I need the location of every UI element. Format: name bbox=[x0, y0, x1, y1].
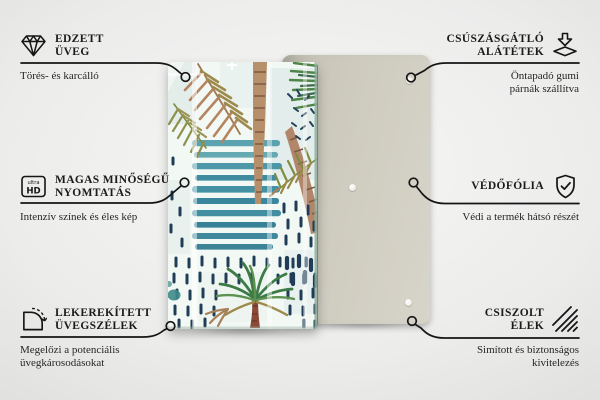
feature-high-quality-print: ultra HD MAGAS MINŐSÉGŰ NYOMTATÁS Intenz… bbox=[20, 170, 192, 224]
feature-title-line: ÜVEGSZÉLEK bbox=[55, 320, 151, 333]
feature-title-line: LEKEREKÍTETT bbox=[55, 307, 151, 320]
feature-title-line: ÜVEG bbox=[55, 46, 104, 59]
feature-subtitle-line: Törés- és karcálló bbox=[20, 70, 192, 83]
ultra-hd-icon-text-top: ultra bbox=[27, 180, 39, 186]
feature-title-line: EDZETT bbox=[55, 33, 104, 46]
feature-rounded-glass-edges: LEKEREKÍTETT ÜVEGSZÉLEK Megelőzi a poten… bbox=[20, 303, 192, 369]
feature-subtitle-line: Intenzív színek és éles kép bbox=[20, 211, 192, 224]
feature-subtitle-line: Védi a termék hátsó részét bbox=[407, 211, 579, 224]
diamond-icon bbox=[20, 32, 47, 59]
product-infographic: EDZETT ÜVEG Törés- és karcálló ultra HD … bbox=[0, 0, 600, 400]
feature-protective-film: VÉDŐFÓLIA Védi a termék hátsó részét bbox=[407, 170, 579, 224]
rubber-pad bbox=[349, 184, 356, 191]
anti-slip-pad-icon bbox=[552, 32, 579, 59]
ultra-hd-icon: ultra HD bbox=[20, 173, 47, 200]
feature-title-line: MAGAS MINŐSÉGŰ bbox=[55, 174, 169, 187]
feature-polished-edges: CSISZOLT ÉLEK Simított és biztonságos ki… bbox=[407, 303, 579, 369]
feature-title-line: NYOMTATÁS bbox=[55, 187, 169, 200]
shield-check-icon bbox=[552, 173, 579, 200]
feature-title-line: CSÚSZÁSGÁTLÓ bbox=[446, 33, 544, 46]
feature-subtitle-line: párnák szállítva bbox=[407, 83, 579, 96]
feature-subtitle-line: üvegkárosodásokat bbox=[20, 357, 192, 370]
teal-blob bbox=[168, 290, 181, 301]
ultra-hd-icon-text-bottom: HD bbox=[26, 187, 40, 197]
feature-subtitle-line: Öntapadó gumi bbox=[407, 70, 579, 83]
feature-title-line: VÉDŐFÓLIA bbox=[471, 180, 544, 193]
feature-title-line: ALÁTÉTEK bbox=[446, 46, 544, 59]
feature-title-line: CSISZOLT bbox=[485, 307, 544, 320]
feature-tempered-glass: EDZETT ÜVEG Törés- és karcálló bbox=[20, 29, 192, 83]
feature-subtitle-line: Megelőzi a potenciális bbox=[20, 344, 192, 357]
feature-subtitle-line: Simított és biztonságos bbox=[407, 344, 579, 357]
rounded-corner-icon bbox=[20, 306, 47, 333]
feature-title-line: ÉLEK bbox=[485, 320, 544, 333]
polished-edge-icon bbox=[552, 306, 579, 333]
feature-anti-slip-pads: CSÚSZÁSGÁTLÓ ALÁTÉTEK Öntapadó gumi párn… bbox=[407, 29, 579, 95]
feature-subtitle-line: kivitelezés bbox=[407, 357, 579, 370]
